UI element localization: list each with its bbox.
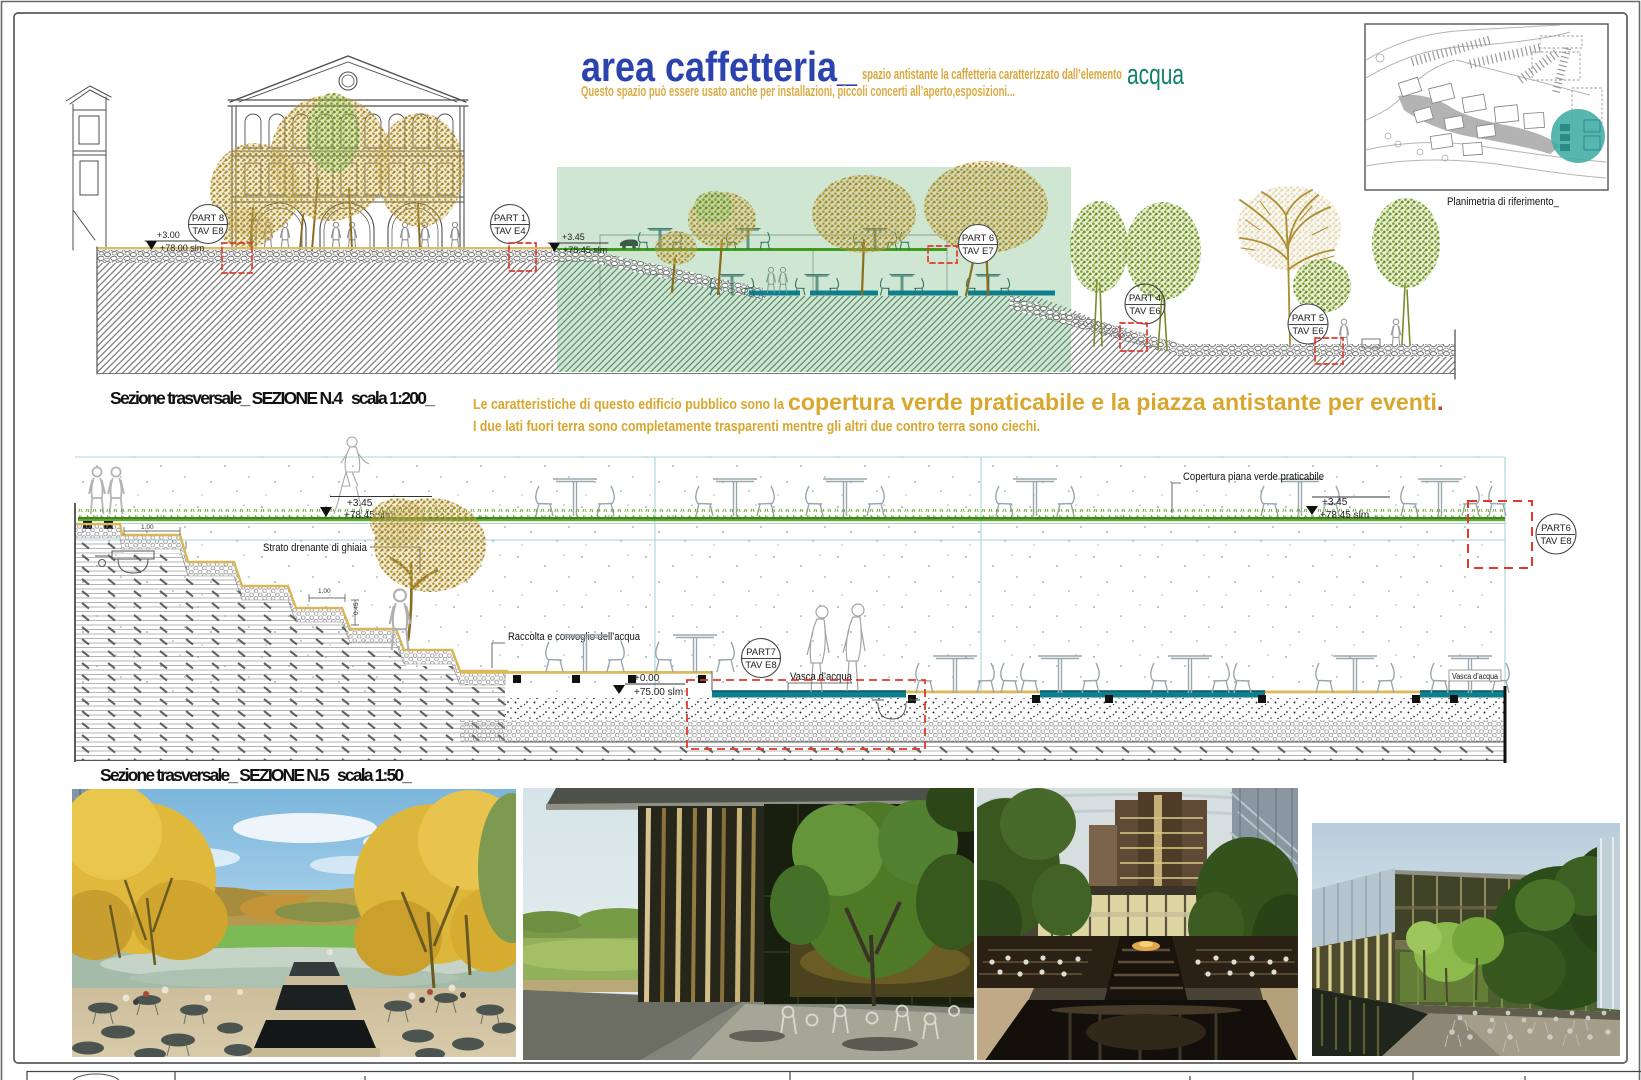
svg-text:PART 6: PART 6 (962, 233, 994, 244)
svg-text:acqua: acqua (1127, 59, 1185, 91)
svg-text:Strato drenante di ghiaia: Strato drenante di ghiaia (263, 542, 368, 554)
svg-text:copertura verde praticabile e: copertura verde praticabile e la piazza … (788, 389, 1437, 415)
svg-text:.: . (1437, 389, 1444, 415)
svg-text:spazio antistante la caffetter: spazio antistante la caffetteria caratte… (862, 66, 1122, 83)
svg-text:+3.45: +3.45 (1322, 497, 1348, 508)
svg-text:PART 4: PART 4 (1129, 293, 1161, 304)
svg-text:+3.00: +3.00 (157, 230, 180, 240)
svg-text:0.45: 0.45 (353, 602, 360, 615)
svg-text:+78.00 slm: +78.00 slm (160, 243, 204, 253)
svg-text:Vasca d’acqua: Vasca d’acqua (790, 671, 853, 683)
svg-text:TAV E7: TAV E7 (962, 246, 993, 257)
svg-text:+75.00 slm: +75.00 slm (634, 687, 683, 698)
svg-text:PART 5: PART 5 (1292, 313, 1324, 324)
svg-text:+3.45: +3.45 (347, 498, 373, 509)
svg-text:TAV E8: TAV E8 (192, 226, 223, 237)
svg-text:+78.45 slm: +78.45 slm (563, 245, 607, 255)
svg-text:1.00: 1.00 (141, 524, 154, 531)
svg-text:I due lati fuori terra sono co: I due lati fuori terra sono completament… (473, 419, 1040, 435)
svg-text:Questo spazio può essere usato: Questo spazio può essere usato anche per… (581, 83, 1015, 100)
svg-text:Copertura piana verde praticab: Copertura piana verde praticabile (1183, 471, 1324, 483)
svg-text:TAV E6: TAV E6 (1292, 326, 1323, 337)
svg-text:Sezione trasversale_ SEZIONE N: Sezione trasversale_ SEZIONE N.4 scala 1… (110, 388, 435, 408)
svg-text:PART 8: PART 8 (192, 213, 224, 224)
svg-text:Vasca d’acqua: Vasca d’acqua (1452, 672, 1498, 681)
svg-text:TAV E8: TAV E8 (1540, 536, 1571, 547)
svg-text:PART6: PART6 (1541, 523, 1571, 534)
svg-text:TAV E6: TAV E6 (1129, 306, 1160, 317)
svg-text:PART7: PART7 (746, 647, 776, 658)
svg-text:PART 1: PART 1 (494, 213, 526, 224)
svg-text:TAV E8: TAV E8 (745, 660, 776, 671)
svg-text:1.00: 1.00 (318, 588, 331, 595)
svg-text:+0.00: +0.00 (634, 673, 660, 684)
svg-text:Le caratteristiche di questo e: Le caratteristiche di questo edificio pu… (473, 397, 785, 413)
svg-text:Planimetria di riferimento_: Planimetria di riferimento_ (1447, 196, 1560, 208)
svg-text:+78.45 slm: +78.45 slm (1320, 510, 1369, 521)
svg-text:TAV E4: TAV E4 (494, 226, 525, 237)
svg-text:Sezione trasversale_ SEZIONE N: Sezione trasversale_ SEZIONE N.5 scala 1… (100, 765, 412, 785)
svg-text:+3.45: +3.45 (562, 232, 585, 242)
